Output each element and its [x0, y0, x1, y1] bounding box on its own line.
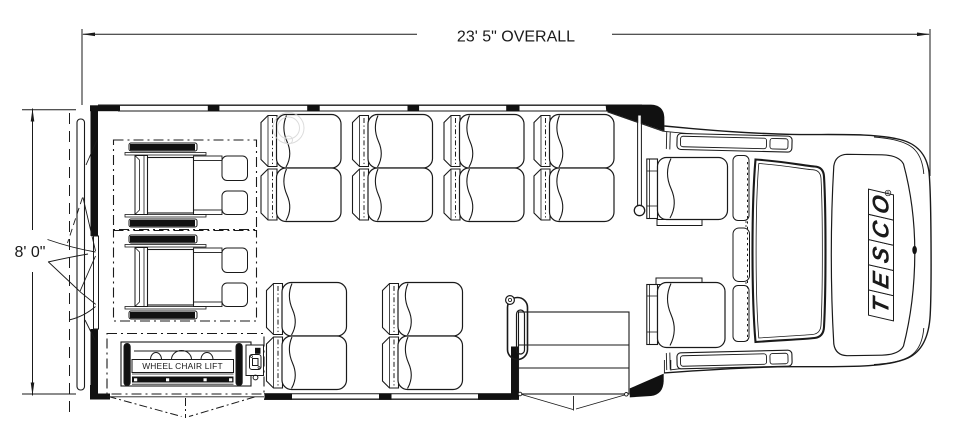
svg-text:8' 0": 8' 0": [15, 244, 46, 261]
svg-text:23' 5" OVERALL: 23' 5" OVERALL: [457, 29, 575, 46]
svg-text:WHEEL CHAIR LIFT: WHEEL CHAIR LIFT: [142, 361, 223, 371]
svg-text:R: R: [886, 191, 889, 196]
